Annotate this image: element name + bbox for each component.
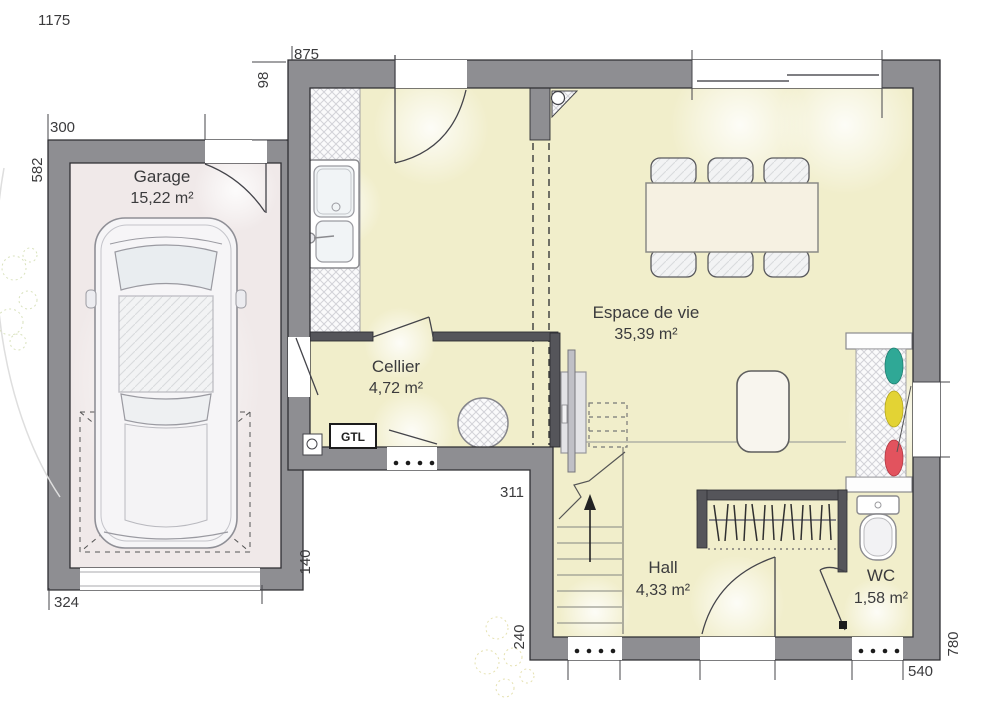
front-door-opening [700, 637, 775, 660]
duct-circle [552, 92, 565, 105]
room-area-wc: 1,58 m² [854, 590, 909, 607]
cellier-wall-left-segment [310, 332, 373, 341]
garage-service-door-opening [205, 140, 267, 163]
bay-window-opening [692, 60, 882, 88]
counter-item-red [885, 440, 903, 476]
counter-item-teal [885, 348, 903, 384]
counter-item-yellow [885, 391, 903, 427]
room-label-espace-de-vie: Espace de vie [593, 303, 700, 322]
dim-garage-top: 300 [50, 119, 75, 136]
car-mirror-left [86, 290, 96, 308]
dim-house-top: 875 [294, 46, 319, 63]
dim-hall-left: 240 [511, 624, 528, 649]
room-area-hall: 4,33 m² [636, 582, 691, 599]
garage-door-opening [80, 568, 260, 590]
dining-table [646, 183, 818, 252]
wc-window-opening [852, 637, 903, 660]
wc-door-hinge [839, 621, 847, 629]
right-window-opening [913, 382, 940, 457]
room-label-hall: Hall [648, 558, 677, 577]
floor-plan: GTL 1175 8 [0, 0, 1000, 703]
media-partition [550, 333, 560, 447]
dim-garage-bottom: 324 [54, 594, 79, 611]
kitchen-counter [305, 88, 360, 332]
room-area-espace-de-vie: 35,39 m² [614, 326, 678, 343]
floor-plan-page: GTL 1175 8 [0, 0, 1000, 703]
dim-garage-right: 140 [297, 549, 314, 574]
kitchen-door-opening [395, 60, 467, 88]
gtl-box: GTL [330, 424, 376, 448]
room-area-cellier: 4,72 m² [369, 380, 424, 397]
meter-box [303, 434, 322, 455]
car-roof [119, 296, 213, 392]
water-heater [458, 398, 508, 448]
cellier-window-opening [387, 447, 437, 470]
car [86, 218, 246, 548]
car-rear-window [121, 394, 211, 425]
dim-total-width: 1175 [38, 12, 70, 29]
room-label-cellier: Cellier [372, 357, 421, 376]
gtl-label: GTL [341, 430, 365, 444]
toilet [857, 496, 899, 560]
room-area-garage: 15,22 m² [130, 190, 194, 207]
room-label-wc: WC [867, 566, 895, 585]
hall-window-opening [568, 637, 622, 660]
dim-top-offset: 98 [255, 72, 272, 89]
dim-cellier-bottom: 311 [500, 484, 524, 501]
cellier-wall-right-segment [433, 332, 558, 341]
room-label-garage: Garage [134, 167, 191, 186]
dim-house-bottom: 540 [908, 663, 933, 680]
coffee-table [737, 371, 789, 452]
wall-stub [530, 88, 550, 140]
dim-house-right: 780 [945, 631, 962, 656]
car-windshield [115, 245, 217, 290]
tv-screen [568, 350, 575, 472]
car-trunk [125, 424, 207, 527]
dim-garage-left: 582 [29, 157, 46, 182]
car-mirror-right [236, 290, 246, 308]
kitchen-sink [305, 160, 359, 268]
side-counter [846, 333, 912, 492]
